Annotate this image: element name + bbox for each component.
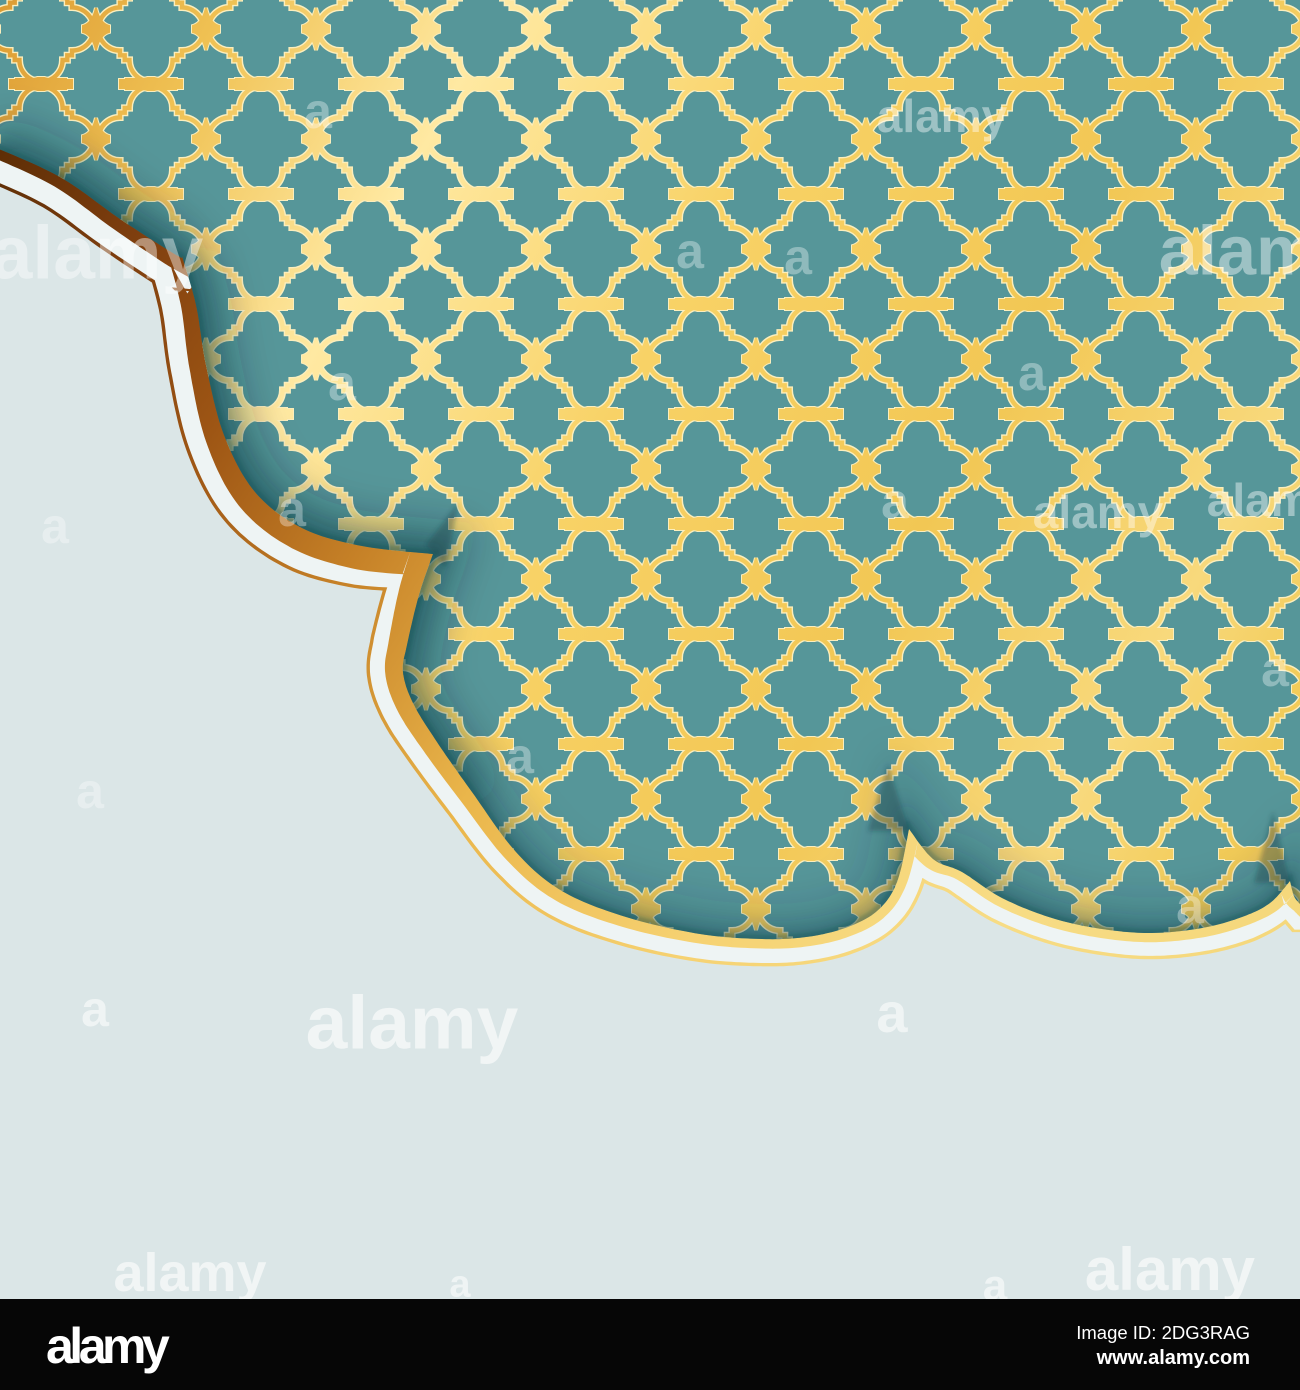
svg-text:a: a <box>676 223 705 279</box>
svg-text:a: a <box>876 981 908 1044</box>
svg-text:alamy: alamy <box>877 90 1008 142</box>
svg-text:a: a <box>1261 641 1290 697</box>
svg-text:alamy: alamy <box>113 1243 266 1303</box>
svg-text:alamy: alamy <box>1159 212 1300 290</box>
svg-text:alamy: alamy <box>1085 1236 1256 1303</box>
svg-text:a: a <box>41 498 70 554</box>
svg-text:a: a <box>328 355 357 411</box>
svg-text:a: a <box>76 763 105 819</box>
svg-text:alamy: alamy <box>1207 474 1300 526</box>
svg-text:alamy: alamy <box>0 210 204 294</box>
svg-text:a: a <box>304 83 333 139</box>
svg-text:alamy: alamy <box>46 1318 170 1374</box>
svg-text:www.alamy.com: www.alamy.com <box>1096 1347 1250 1369</box>
svg-text:alamy: alamy <box>306 980 519 1064</box>
svg-text:a: a <box>1018 345 1047 401</box>
svg-text:a: a <box>784 229 813 285</box>
svg-text:a: a <box>506 728 535 784</box>
svg-text:a: a <box>1176 878 1205 934</box>
svg-text:a: a <box>81 981 110 1037</box>
svg-text:Image ID: 2DG3RAG: Image ID: 2DG3RAG <box>1076 1322 1250 1343</box>
svg-text:a: a <box>278 481 307 537</box>
svg-text:alamy: alamy <box>1033 486 1164 538</box>
svg-text:a: a <box>881 473 910 529</box>
